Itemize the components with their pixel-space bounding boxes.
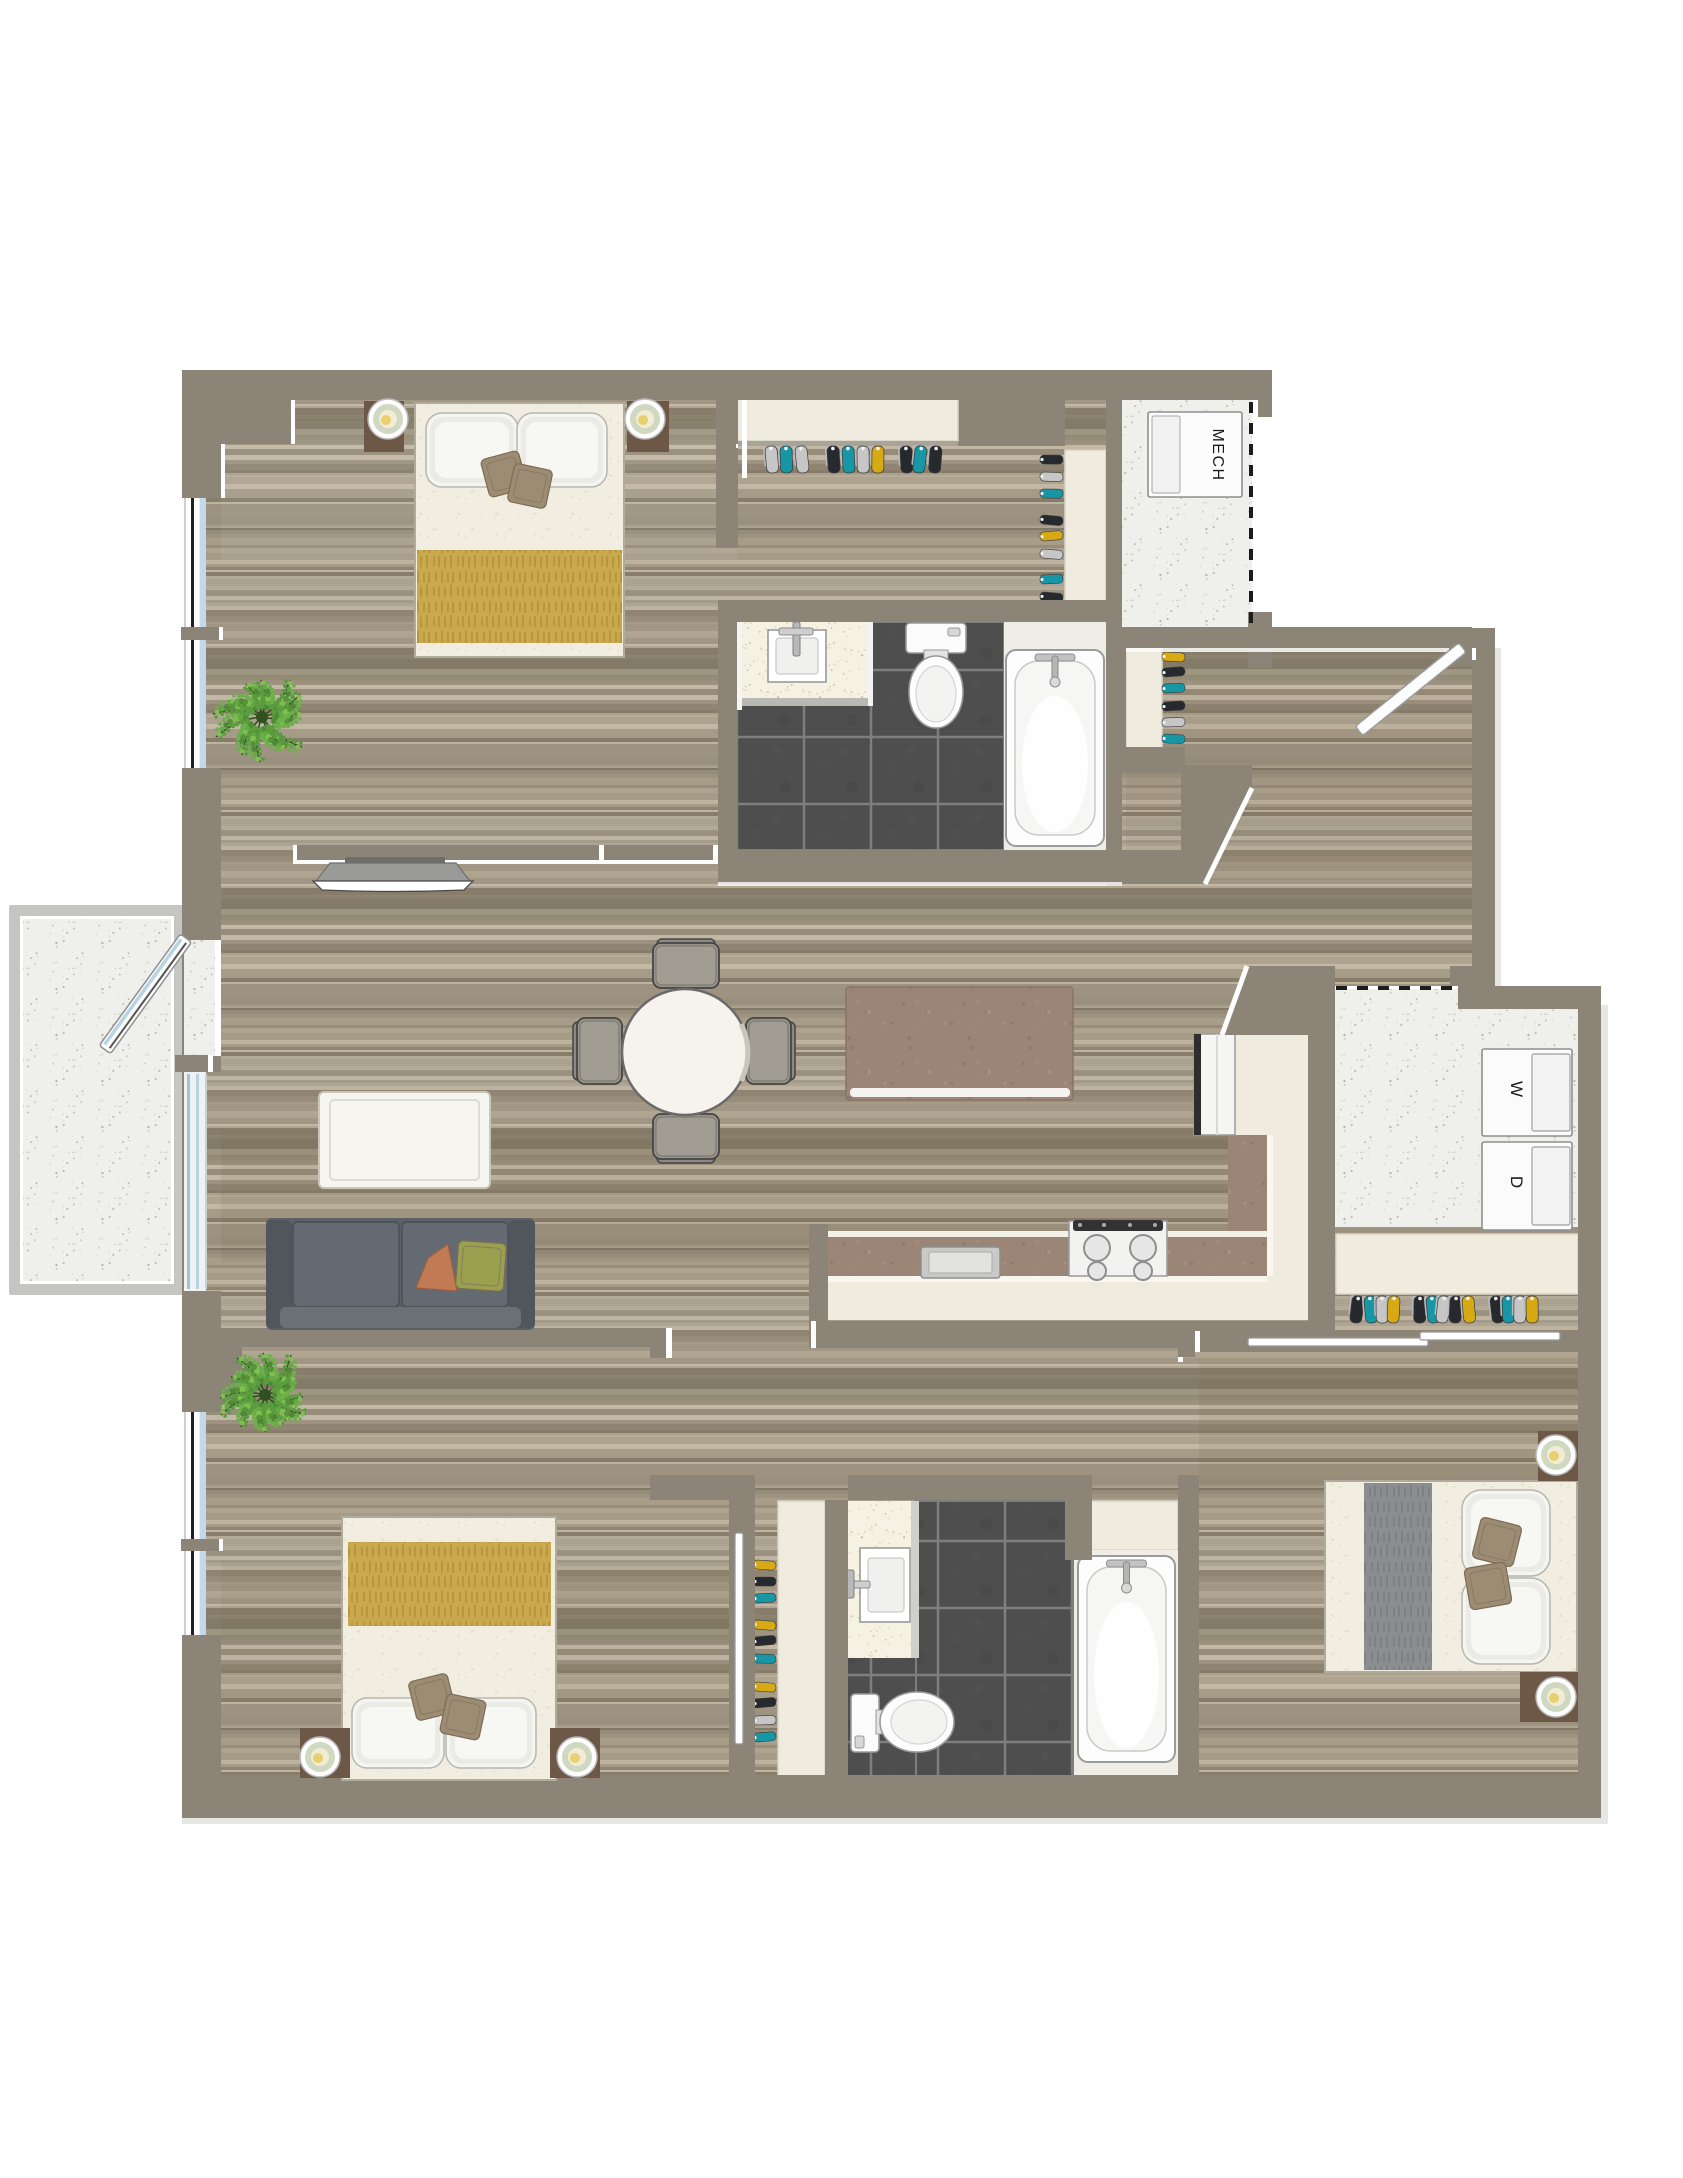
svg-text:MECH: MECH bbox=[1209, 428, 1226, 481]
svg-text:W: W bbox=[1507, 1081, 1526, 1097]
svg-text:D: D bbox=[1507, 1176, 1526, 1188]
